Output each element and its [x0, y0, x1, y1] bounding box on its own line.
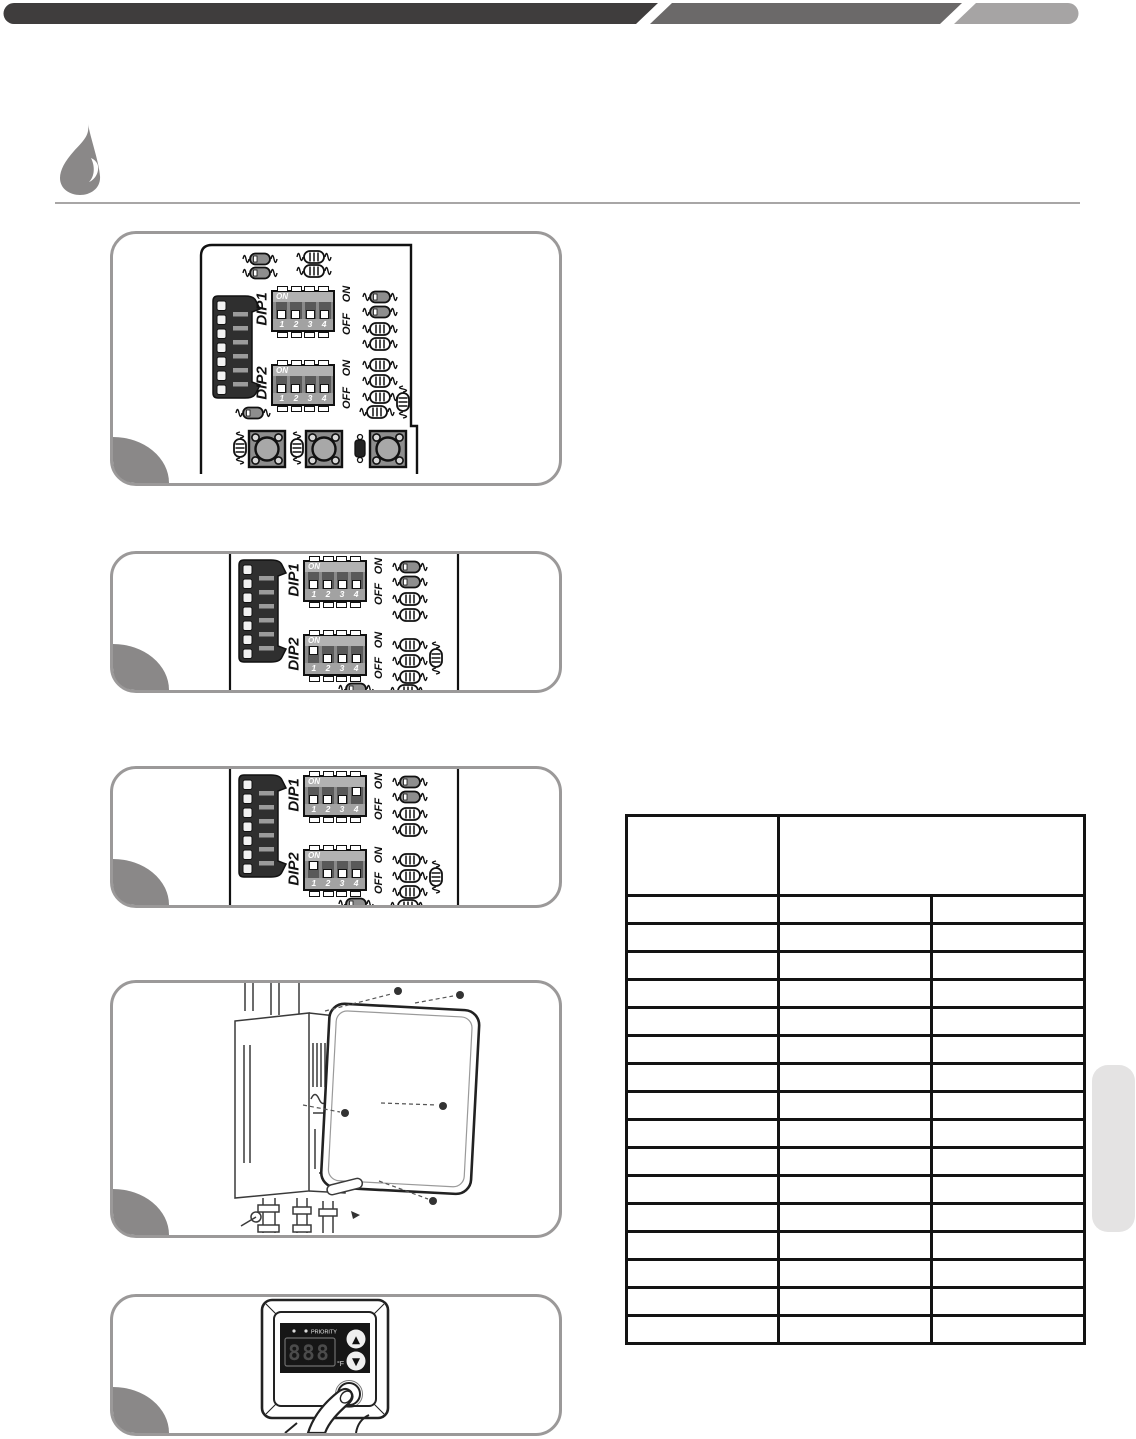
dip1-switch-1 — [276, 302, 288, 319]
table-row — [627, 1064, 1085, 1092]
dip-on-label: ON — [273, 366, 333, 376]
dip1-switch-1 — [308, 787, 320, 804]
temperature-display: 888 — [288, 1341, 330, 1365]
table-cell — [779, 924, 932, 952]
dip-on-label: ON — [305, 636, 365, 646]
dip-switch-numbers: 1 2 3 4 — [273, 319, 333, 330]
dip1-switch-block: ON 1 2 3 4 — [303, 771, 367, 821]
table-cell — [779, 1064, 932, 1092]
table-cell — [627, 1288, 779, 1316]
table-row — [627, 1092, 1085, 1120]
dip1-switch-block: ON 1 2 3 4 — [271, 286, 335, 336]
dip1-switch-3 — [337, 572, 349, 589]
table-cell — [627, 952, 779, 980]
table-cell — [627, 1232, 779, 1260]
table-cell — [779, 1148, 932, 1176]
table-cell — [627, 1036, 779, 1064]
table-header-cell — [627, 816, 779, 896]
table-cell — [779, 1260, 932, 1288]
table-cell — [779, 1232, 932, 1260]
dip-on-label: ON — [305, 851, 365, 861]
dip1-switch-2 — [322, 787, 334, 804]
dip2-switch-block: ON 1 2 3 4 — [271, 360, 335, 410]
dip1-switch-2 — [322, 572, 334, 589]
table-cell — [627, 924, 779, 952]
heater-art — [113, 983, 559, 1235]
dip1-switch-1 — [308, 572, 320, 589]
table-row — [627, 896, 1085, 924]
table-cell — [779, 952, 932, 980]
table-row — [627, 980, 1085, 1008]
dip2-switch-block: ON 1 2 3 4 — [303, 845, 367, 895]
section-divider-line — [55, 202, 1080, 204]
dip2-switch-1 — [276, 376, 288, 393]
dip2-switch-block: ON 1 2 3 4 — [303, 630, 367, 680]
dip1-switch-4 — [319, 302, 331, 319]
dip1-label: DIP1 — [286, 563, 303, 596]
dip2-off-side-label: OFF — [373, 657, 385, 679]
dip1-on-side-label: ON — [373, 773, 385, 790]
dip-switch-numbers: 1 2 3 4 — [305, 663, 365, 674]
table-row — [627, 1148, 1085, 1176]
table-row — [627, 1008, 1085, 1036]
pcb-overview-art — [113, 234, 559, 483]
status-led — [292, 1329, 295, 1332]
table-header-row — [627, 816, 1085, 896]
table-cell — [779, 1120, 932, 1148]
page-header-bar — [0, 0, 1136, 30]
priority-led — [304, 1329, 307, 1332]
dip2-label: DIP2 — [286, 852, 303, 885]
table-cell — [932, 952, 1085, 980]
table-cell — [627, 1064, 779, 1092]
figure-heater-cover-removal — [110, 980, 562, 1238]
table-row — [627, 1204, 1085, 1232]
dip2-switch-4 — [351, 646, 363, 663]
table-cell — [932, 1204, 1085, 1232]
dip-switch-numbers: 1 2 3 4 — [305, 878, 365, 889]
dip1-label: DIP1 — [286, 778, 303, 811]
dip-legs — [271, 406, 335, 410]
table-cell — [627, 980, 779, 1008]
dip2-switch-1 — [308, 646, 320, 663]
table-cell — [932, 1316, 1085, 1344]
dip2-switch-1 — [308, 861, 320, 878]
table-cell — [779, 1288, 932, 1316]
dip-on-label: ON — [305, 777, 365, 787]
dip-switch-numbers: 1 2 3 4 — [273, 393, 333, 404]
dip-on-label: ON — [273, 292, 333, 302]
table-header-cell — [779, 816, 1085, 896]
table-row — [627, 952, 1085, 980]
dip-legs — [303, 602, 367, 606]
dip2-switch-4 — [351, 861, 363, 878]
dip-setting-table — [625, 814, 1086, 1345]
dip1-switch-3 — [337, 787, 349, 804]
table-cell — [627, 896, 779, 924]
dip1-off-side-label: OFF — [373, 798, 385, 820]
table-cell — [779, 1204, 932, 1232]
dip2-on-side-label: ON — [373, 847, 385, 864]
table-cell — [932, 924, 1085, 952]
dip1-switch-2 — [290, 302, 302, 319]
table-cell — [932, 1260, 1085, 1288]
dip2-off-side-label: OFF — [373, 872, 385, 894]
dip-legs — [303, 891, 367, 895]
dip2-switch-2 — [290, 376, 302, 393]
dip-on-label: ON — [305, 562, 365, 572]
table-cell — [932, 1232, 1085, 1260]
dip2-label: DIP2 — [286, 637, 303, 670]
table-cell — [627, 1008, 779, 1036]
table-cell — [627, 1260, 779, 1288]
table-cell — [932, 980, 1085, 1008]
table-cell — [932, 896, 1085, 924]
table-cell — [932, 1064, 1085, 1092]
table-cell — [779, 1092, 932, 1120]
table-cell — [627, 1176, 779, 1204]
table-cell — [779, 1036, 932, 1064]
dip2-switch-4 — [319, 376, 331, 393]
dip1-label: DIP1 — [254, 292, 271, 325]
dip1-on-side-label: ON — [373, 558, 385, 575]
dip2-on-side-label: ON — [341, 360, 353, 377]
dip-legs — [303, 817, 367, 821]
table-row — [627, 1316, 1085, 1344]
dip1-on-side-label: ON — [341, 286, 353, 303]
header-bar-mid-segment — [650, 3, 962, 24]
up-arrow-icon: ▲ — [352, 1334, 361, 1346]
table-cell — [627, 1148, 779, 1176]
table-row — [627, 1036, 1085, 1064]
fahrenheit-unit-label: °F — [337, 1360, 344, 1368]
dip2-off-side-label: OFF — [341, 387, 353, 409]
table-row — [627, 924, 1085, 952]
dip-switch-numbers: 1 2 3 4 — [305, 589, 365, 600]
table-row — [627, 1232, 1085, 1260]
table-cell — [932, 1036, 1085, 1064]
table-cell — [779, 1008, 932, 1036]
dip1-switch-3 — [305, 302, 317, 319]
table-row — [627, 1288, 1085, 1316]
table-row — [627, 1120, 1085, 1148]
figure-pcb-dip-detail-2: ON 1 2 3 4 ON 1 2 3 4 DIP1 DIP2 ON — [110, 766, 562, 908]
dip2-switch-3 — [337, 646, 349, 663]
table-cell — [779, 1316, 932, 1344]
dip2-switch-2 — [322, 646, 334, 663]
water-drop-icon — [54, 122, 106, 198]
table-cell — [627, 1316, 779, 1344]
dip1-off-side-label: OFF — [341, 313, 353, 335]
table-cell — [627, 1092, 779, 1120]
dip2-switch-2 — [322, 861, 334, 878]
down-arrow-icon: ▼ — [352, 1356, 361, 1368]
table-cell — [932, 1008, 1085, 1036]
table-cell — [932, 1176, 1085, 1204]
table-row — [627, 1260, 1085, 1288]
figure-remote-controller: PRIORITY 888 °F ▲ ▼ — [110, 1294, 562, 1436]
table-cell — [932, 1288, 1085, 1316]
table-cell — [779, 1176, 932, 1204]
dip2-switch-3 — [337, 861, 349, 878]
dip-switch-numbers: 1 2 3 4 — [305, 804, 365, 815]
controller-art: PRIORITY 888 °F ▲ ▼ — [113, 1297, 559, 1433]
dip-legs — [271, 332, 335, 336]
header-bar-dark-segment — [4, 3, 659, 24]
table-row — [627, 1176, 1085, 1204]
dip1-switch-block: ON 1 2 3 4 — [303, 556, 367, 606]
table-cell — [932, 1148, 1085, 1176]
dip1-switch-4 — [351, 572, 363, 589]
figure-pcb-overview: ON 1 2 3 4 ON 1 2 3 4 DIP1 DIP2 ON — [110, 231, 562, 486]
dip1-switch-4 — [351, 787, 363, 804]
table-cell — [932, 1092, 1085, 1120]
header-bar-light-segment — [954, 3, 1079, 24]
priority-label: PRIORITY — [311, 1330, 337, 1336]
table-cell — [932, 1120, 1085, 1148]
dip-legs — [303, 676, 367, 680]
dip1-off-side-label: OFF — [373, 583, 385, 605]
table-cell — [779, 896, 932, 924]
table-cell — [779, 980, 932, 1008]
figure-pcb-dip-detail-1: ON 1 2 3 4 ON 1 2 3 4 DIP1 DIP2 ON — [110, 551, 562, 693]
dip2-switch-3 — [305, 376, 317, 393]
table-cell — [627, 1120, 779, 1148]
table-cell — [627, 1204, 779, 1232]
dip2-on-side-label: ON — [373, 632, 385, 649]
dip2-label: DIP2 — [254, 366, 271, 399]
page-edge-tab — [1092, 1065, 1136, 1233]
